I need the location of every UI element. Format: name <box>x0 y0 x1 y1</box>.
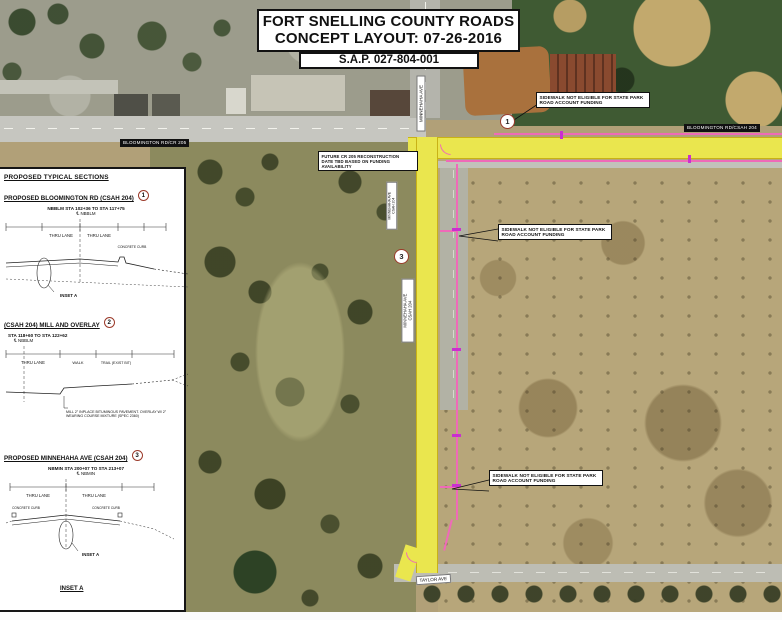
bloomington-road-west <box>0 116 426 142</box>
parking-stalls <box>453 170 454 406</box>
taylor-ave-road <box>394 564 782 582</box>
section-3-curb-left-label: CONCRETE CURB <box>12 506 40 510</box>
sheet-title-line1: FORT SNELLING COUNTY ROADS <box>259 13 518 30</box>
ped-ramp-tick <box>452 434 461 437</box>
sidewalk-line-north <box>494 133 782 135</box>
section-3-number-badge: 3 <box>132 450 143 461</box>
section-2-number-badge: 2 <box>104 317 115 328</box>
lane-line <box>4 128 414 129</box>
frontage-path <box>0 80 118 94</box>
section-2-lane-label: THRU LANE <box>21 360 45 365</box>
sidewalk-line-east <box>456 164 458 520</box>
bloomington-road-east-highlight <box>408 137 782 159</box>
road-label-line: CSAH 204 <box>408 282 413 339</box>
future-note-line2: DATE TBD BASED ON FUNDING AVAILABILITY <box>322 159 415 169</box>
road-label-minnehaha-mid: MINNEHAHA AVE CSAH 204 <box>401 279 414 343</box>
section-2-title: (CSAH 204) MILL AND OVERLAY <box>4 322 100 329</box>
section-3-lane-right-label: THRU LANE <box>82 493 106 498</box>
road-label-line: CSAH 204 <box>392 185 396 226</box>
building <box>370 90 414 118</box>
section-1-diagram: THRU LANE THRU LANE CONCRETE CURB INSET … <box>4 217 190 308</box>
section-2-walk-label: WALK <box>72 360 84 365</box>
section-marker-1: 1 <box>500 114 515 129</box>
section-marker-3: 3 <box>394 249 409 264</box>
panel-header: PROPOSED TYPICAL SECTIONS <box>4 174 182 181</box>
section-1-lane-left-label: THRU LANE <box>49 233 73 238</box>
sap-number: S.A.P. 027-804-001 <box>299 52 479 69</box>
sidewalk-line-south <box>446 160 782 162</box>
future-reconstruction-note: FUTURE CR 205 RECONSTRUCTION DATE TBD BA… <box>318 151 418 171</box>
section-1-title: PROPOSED BLOOMINGTON RD (CSAH 204) <box>4 195 134 202</box>
funding-callout-south: SIDEWALK NOT ELIGIBLE FOR STATE PARK ROA… <box>489 470 603 486</box>
section-2-diagram: THRU LANE WALK TRAIL (EXIST BIT) MILL 2"… <box>4 344 190 441</box>
sheet-title-line2: CONCEPT LAYOUT: 07-26-2016 <box>259 30 518 47</box>
funding-callout-north: SIDEWALK NOT ELIGIBLE FOR STATE PARK ROA… <box>536 92 650 108</box>
section-1-number-badge: 1 <box>138 190 149 201</box>
aerial-map: BLOOMINGTON RD/CR 205 BLOOMINGTON RD/CSA… <box>0 0 782 612</box>
concept-layout-sheet: BLOOMINGTON RD/CR 205 BLOOMINGTON RD/CSA… <box>0 0 782 620</box>
road-label-minnehaha-north: MINNEHAHA AVE <box>416 76 425 132</box>
section-3-lane-left-label: THRU LANE <box>26 493 50 498</box>
building <box>226 88 246 114</box>
section-3-curb-right-label: CONCRETE CURB <box>92 506 120 510</box>
ped-ramp-tick <box>452 228 461 231</box>
building <box>114 94 148 118</box>
south-shoulder <box>408 161 782 168</box>
building <box>152 94 180 118</box>
section-2-note: MILL 2" INPLACE BITUMINOUS PAVEMENT. OVE… <box>66 410 176 419</box>
section-1: PROPOSED BLOOMINGTON RD (CSAH 204)1 NBBL… <box>4 187 182 308</box>
section-3-inset-ref: INSET A <box>82 552 100 557</box>
storage-rows <box>550 54 616 94</box>
lane-line <box>404 572 774 573</box>
road-label-bloomington-west: BLOOMINGTON RD/CR 205 <box>120 139 189 147</box>
inset-a-detail: INSET A 2" TYPE SP 12.5 WEARING COURSE M… <box>4 584 182 612</box>
section-3: PROPOSED MINNEHAHA AVE (CSAH 204)3 NBMIN… <box>4 447 182 578</box>
section-3-title: PROPOSED MINNEHAHA AVE (CSAH 204) <box>4 455 128 462</box>
funding-callout-middle: SIDEWALK NOT ELIGIBLE FOR STATE PARK ROA… <box>498 224 612 240</box>
tree-row <box>420 582 782 612</box>
section-1-curb-label: CONCRETE CURB <box>118 245 148 249</box>
road-label-bloomington-east: BLOOMINGTON RD/CSAH 204 <box>684 124 760 132</box>
parking-lot-strip <box>440 166 468 410</box>
ped-ramp-tick <box>452 348 461 351</box>
road-label-minnehaha-mid-small: MINNEHAHA AVE CSAH 204 <box>386 182 397 230</box>
ped-ramp-tick <box>688 155 691 163</box>
minnehaha-ave-highlight <box>416 137 438 573</box>
section-1-lane-right-label: THRU LANE <box>87 233 111 238</box>
section-2-trail-label: TRAIL (EXIST BIT) <box>101 361 131 365</box>
inset-a-title: INSET A <box>60 586 83 592</box>
building <box>250 74 346 112</box>
typical-sections-panel: PROPOSED TYPICAL SECTIONS PROPOSED BLOOM… <box>0 167 186 612</box>
section-1-inset-ref: INSET A <box>60 293 78 298</box>
ped-ramp-tick <box>560 131 563 139</box>
title-block: FORT SNELLING COUNTY ROADS CONCEPT LAYOU… <box>257 9 520 52</box>
section-3-diagram: THRU LANE THRU LANE CONCRETE CURB CONCRE… <box>4 477 190 578</box>
section-2: (CSAH 204) MILL AND OVERLAY2 STA 118+60 … <box>4 314 182 441</box>
ped-ramp-tick <box>452 484 461 487</box>
